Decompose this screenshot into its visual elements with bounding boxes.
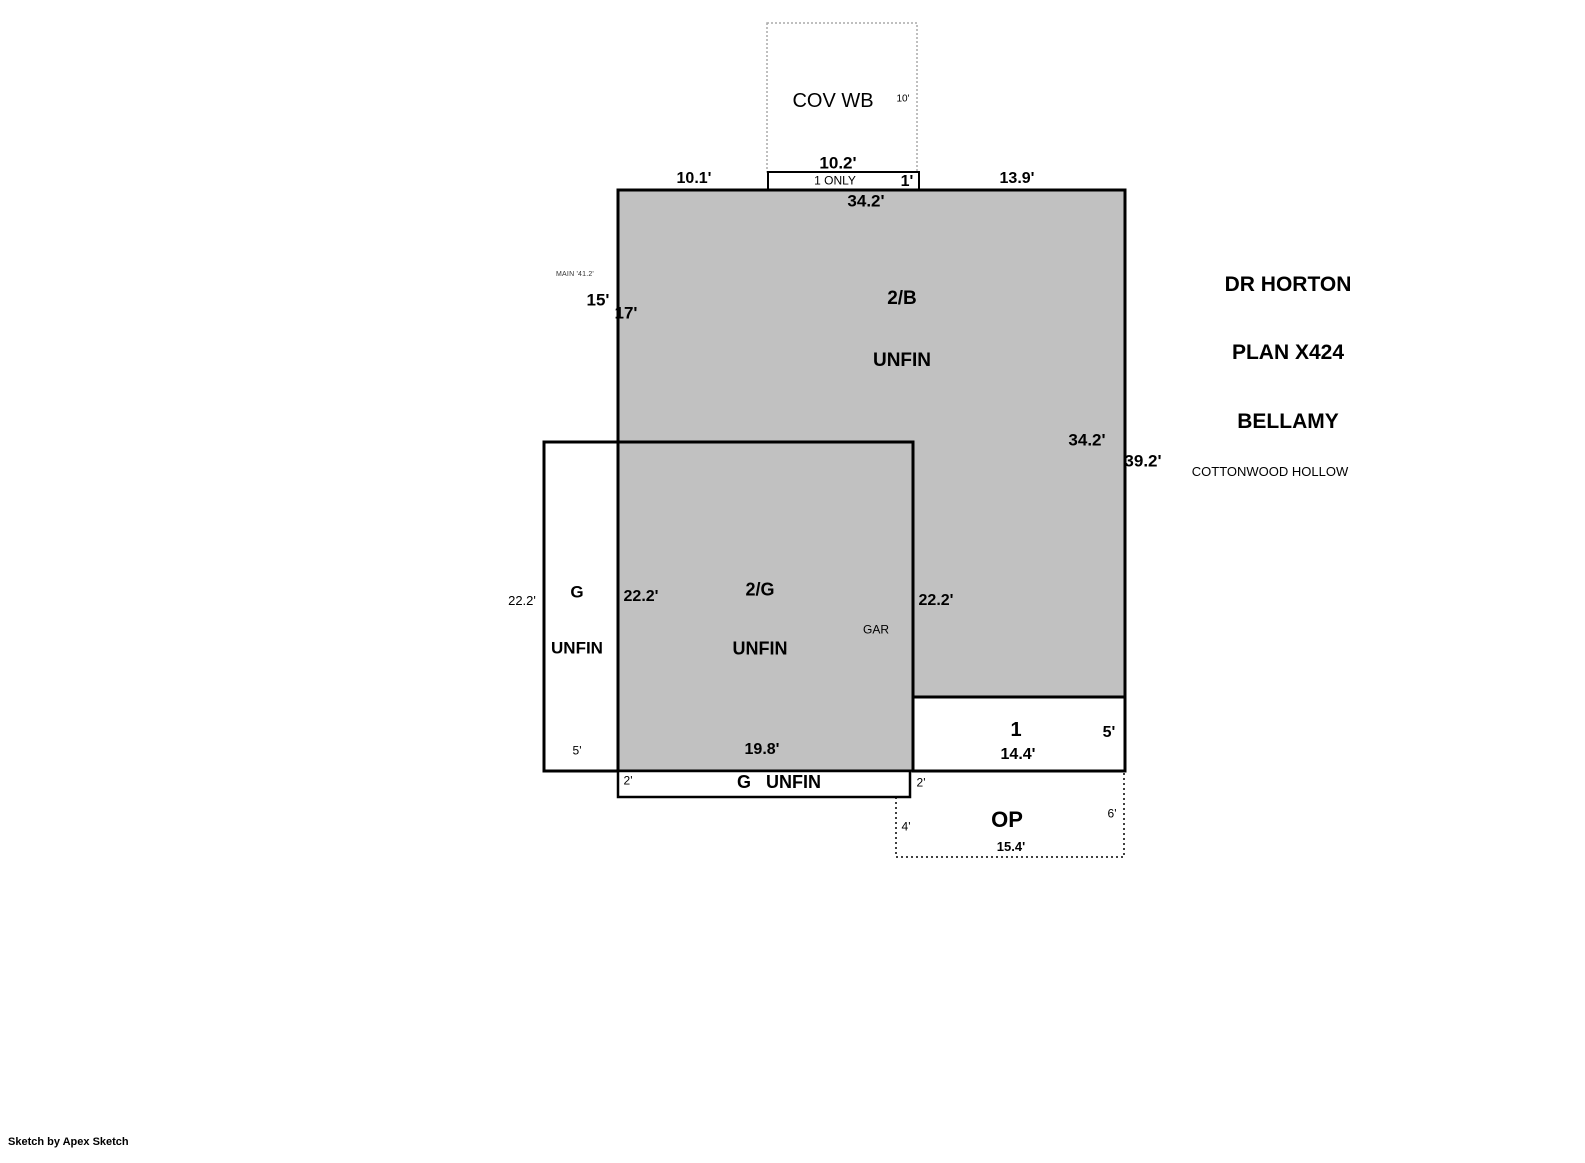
garage-room-line1: 2/G	[733, 580, 788, 600]
plan-title-line2: PLAN X424	[1225, 343, 1352, 365]
garage-col-line2: UNFIN	[551, 640, 603, 659]
garage-inner-left-height-dim: 22.2'	[624, 588, 659, 606]
plan-title-line3: BELLAMY	[1225, 411, 1352, 433]
main-room-line2: UNFIN	[873, 351, 931, 372]
strip-right-depth-dim: 2'	[917, 776, 926, 789]
garage-outer-height-dim: 22.2'	[508, 594, 536, 608]
left-outer-height-dim: 15'	[587, 292, 610, 311]
garage-col-label: G UNFIN	[551, 547, 603, 678]
gar-note: GAR	[863, 623, 889, 636]
garage-col-line1: G	[551, 584, 603, 603]
garage-bottom-width-dim: 19.8'	[745, 741, 780, 759]
plan-title-line1: DR HORTON	[1225, 274, 1352, 296]
subdivision-label: COTTONWOOD HOLLOW	[1192, 465, 1348, 479]
garage-room-line2: UNFIN	[733, 640, 788, 660]
main-area-note: MAIN '41.2'	[556, 271, 594, 279]
sketch-credit: Sketch by Apex Sketch	[8, 1136, 129, 1148]
plan-title: DR HORTON PLAN X424 BELLAMY	[1225, 228, 1352, 456]
garage-room-label: 2/G UNFIN	[733, 541, 788, 680]
porch-depth-dim: 5'	[1103, 724, 1116, 742]
op-label: OP	[991, 808, 1023, 832]
main-building-outline	[618, 190, 1125, 771]
porch-width-dim: 14.4'	[1001, 746, 1036, 764]
op-left-depth-dim: 4'	[902, 820, 911, 833]
right-inner-height-dim: 34.2'	[1068, 432, 1105, 451]
garage-inner-right-height-dim: 22.2'	[919, 592, 954, 610]
left-offset-dim: 10.1'	[677, 170, 712, 188]
garage-col-width-dim: 5'	[573, 744, 582, 757]
strip-label: G UNFIN	[737, 773, 821, 793]
one-only-depth-dim: 1'	[901, 173, 914, 191]
top-width-dim: 34.2'	[847, 193, 884, 212]
strip-left-depth-dim: 2'	[624, 774, 633, 787]
floorplan-sketch	[0, 0, 1585, 1163]
right-offset-dim: 13.9'	[1000, 170, 1035, 188]
left-inner-height-dim: 17'	[615, 305, 638, 324]
op-right-depth-dim: 6'	[1108, 807, 1117, 820]
porch-label: 1	[1010, 719, 1021, 741]
cov-wb-width-dim: 10.2'	[819, 155, 856, 174]
one-only-label: 1 ONLY	[814, 174, 856, 187]
cov-wb-label: COV WB	[792, 90, 873, 112]
main-room-line1: 2/B	[873, 289, 931, 310]
right-outer-height-dim: 39.2'	[1124, 453, 1161, 472]
main-room-label: 2/B UNFIN	[873, 247, 931, 393]
op-width-dim: 15.4'	[997, 840, 1025, 854]
cov-wb-depth-dim: 10'	[896, 94, 909, 105]
